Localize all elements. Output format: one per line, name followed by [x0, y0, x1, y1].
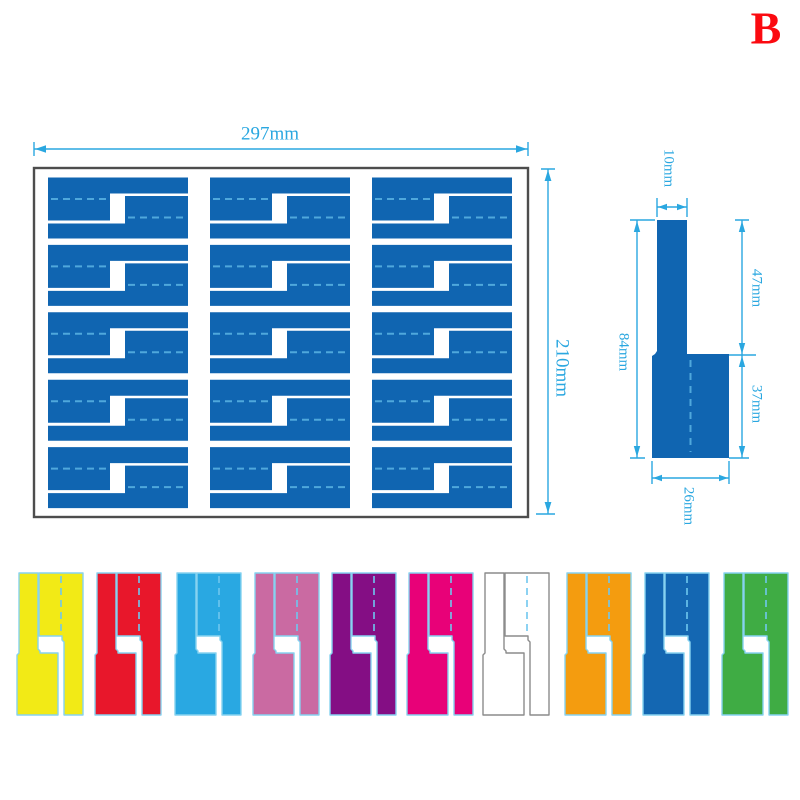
dim-label-sheet-height: 210mm	[553, 339, 572, 397]
variant-badge: B	[751, 2, 782, 55]
cable-label-product-diagram: 297mm 210mm 10mm 47mm 84mm 37mm 26mm B	[0, 0, 800, 800]
color-samples-row	[17, 573, 788, 715]
dim-label-stem-width: 10mm	[661, 149, 676, 187]
dim-label-sheet-width: 297mm	[241, 125, 299, 144]
single-label-shape	[652, 220, 729, 458]
label-color-sample-yellow	[17, 573, 83, 715]
label-color-sample-sky-blue	[175, 573, 241, 715]
label-color-sample-orchid	[253, 573, 319, 715]
dim-label-stem-length: 47mm	[749, 269, 764, 307]
label-color-sample-green	[722, 573, 788, 715]
label-color-sample-red	[95, 573, 161, 715]
label-color-sample-purple	[330, 573, 396, 715]
dim-label-total-length: 84mm	[616, 333, 631, 371]
label-color-sample-blue	[643, 573, 709, 715]
dim-label-flag-width: 26mm	[681, 487, 696, 525]
label-color-sample-magenta	[407, 573, 473, 715]
label-sheet	[34, 168, 528, 517]
diagram-canvas	[0, 0, 800, 800]
label-color-sample-white	[483, 573, 549, 715]
label-color-sample-orange	[565, 573, 631, 715]
dim-label-flag-length: 37mm	[749, 385, 764, 423]
